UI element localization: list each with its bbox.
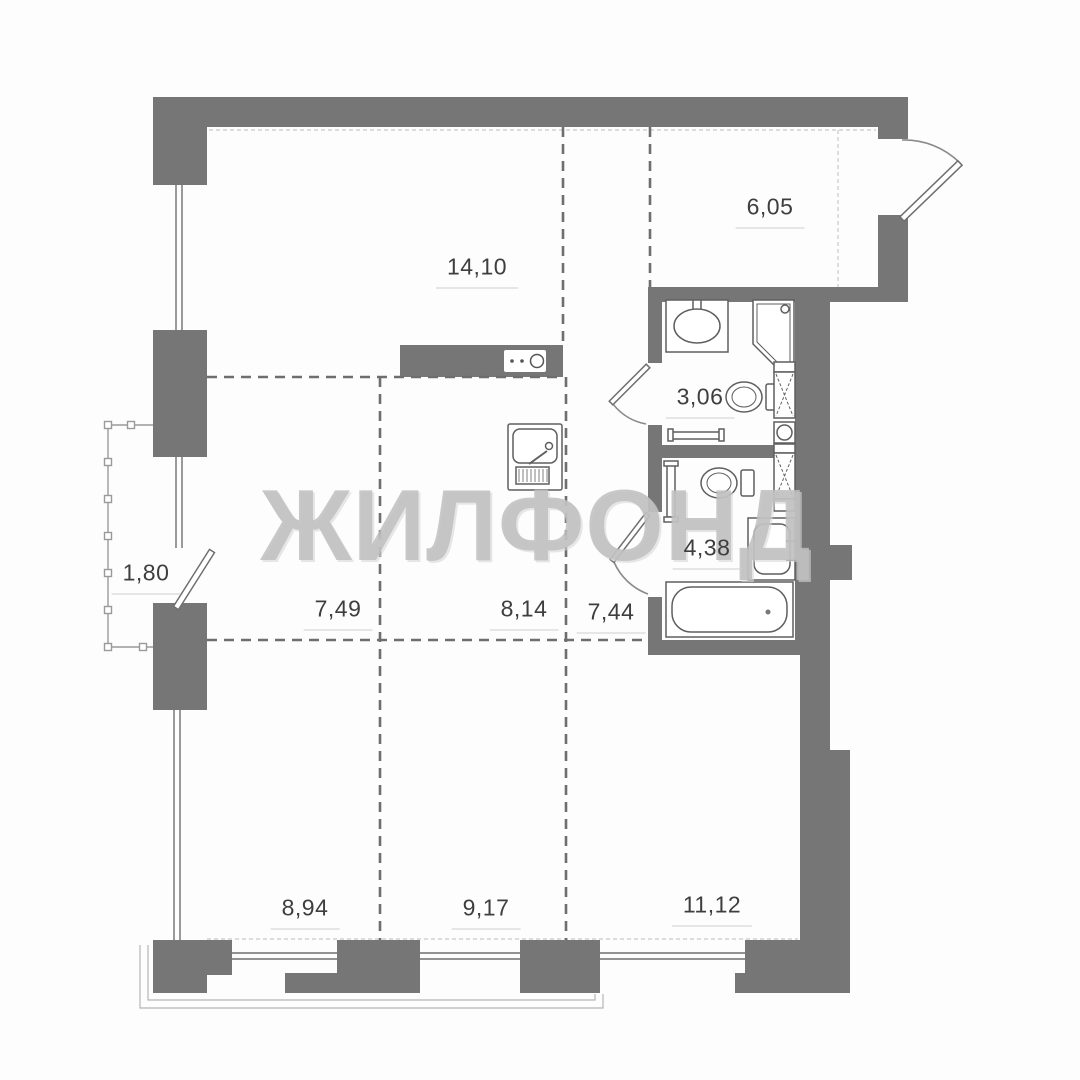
door-leaf bbox=[900, 161, 962, 221]
door-opening-bath-upper bbox=[646, 363, 664, 425]
entrance-door bbox=[900, 140, 962, 221]
room-label-bedroom-right: 11,12 bbox=[672, 892, 752, 927]
door-leaf bbox=[609, 364, 650, 405]
wall-bottom-pier-6 bbox=[520, 973, 600, 993]
floor-plan: ЖИЛФОНД 14,10 6,05 3,06 4,38 1,80 7,49 8… bbox=[0, 0, 1080, 1080]
toilet-icon bbox=[701, 468, 754, 498]
bathroom-upper-fixtures bbox=[666, 300, 795, 443]
wall-bath-left bbox=[648, 287, 662, 655]
room-label-room-left: 7,49 bbox=[304, 596, 373, 631]
bathroom-lower-door bbox=[610, 513, 650, 595]
wall-left-pier-2 bbox=[153, 330, 207, 457]
wall-bottom-pier-5 bbox=[285, 973, 420, 993]
doors bbox=[174, 140, 963, 610]
wash-basin-icon bbox=[666, 300, 728, 352]
washer-column-icon bbox=[774, 362, 795, 443]
room-label-balcony: 1,80 bbox=[112, 560, 181, 595]
wall-right-bump bbox=[830, 545, 852, 580]
floor-plan-drawing bbox=[0, 0, 1080, 1080]
wall-bath-bottom bbox=[648, 640, 830, 655]
room-label-bathroom-lower: 4,38 bbox=[673, 535, 742, 570]
door-opening-bath-lower bbox=[646, 512, 664, 597]
wall-bottom-pier-7 bbox=[735, 973, 850, 993]
door-arc bbox=[614, 562, 648, 594]
partition-lines bbox=[207, 127, 650, 940]
room-label-bathroom-upper: 3,06 bbox=[666, 384, 735, 419]
kitchen-sink-icon bbox=[508, 424, 562, 490]
room-label-living-kitchen: 14,10 bbox=[436, 254, 518, 289]
washer-column-icon bbox=[774, 444, 795, 511]
door-arc bbox=[902, 140, 960, 163]
shower-cabin-icon bbox=[753, 300, 794, 368]
wall-top bbox=[153, 97, 908, 127]
room-label-entry-hall: 6,05 bbox=[736, 194, 805, 229]
towel-radiator-icon bbox=[664, 461, 678, 522]
wall-right-lower bbox=[800, 655, 830, 750]
room-label-bedroom-left: 8,94 bbox=[271, 895, 340, 930]
balcony-railing bbox=[105, 422, 154, 651]
towel-rail-icon bbox=[668, 429, 724, 441]
bathtub-icon bbox=[666, 582, 793, 637]
wall-bottom-pier-3 bbox=[520, 940, 600, 975]
room-label-room-middle: 8,14 bbox=[490, 596, 559, 631]
door-arc bbox=[613, 404, 646, 424]
wall-left-pier-3 bbox=[153, 603, 207, 710]
wash-basin-icon bbox=[748, 518, 795, 580]
wall-left-pier-1 bbox=[153, 127, 207, 185]
door-leaf bbox=[610, 513, 650, 563]
cooktop-icon bbox=[504, 350, 546, 372]
room-label-bedroom-middle: 9,17 bbox=[452, 895, 521, 930]
wall-right-top bbox=[878, 127, 908, 139]
wall-bath-right bbox=[795, 287, 830, 655]
room-label-hallway: 7,44 bbox=[577, 599, 646, 634]
wall-bottom-pier-4 bbox=[745, 940, 850, 975]
wall-bottom-pier-1 bbox=[153, 940, 232, 975]
bathroom-upper-door bbox=[609, 364, 650, 424]
wall-bottom-pier-2 bbox=[337, 940, 420, 975]
